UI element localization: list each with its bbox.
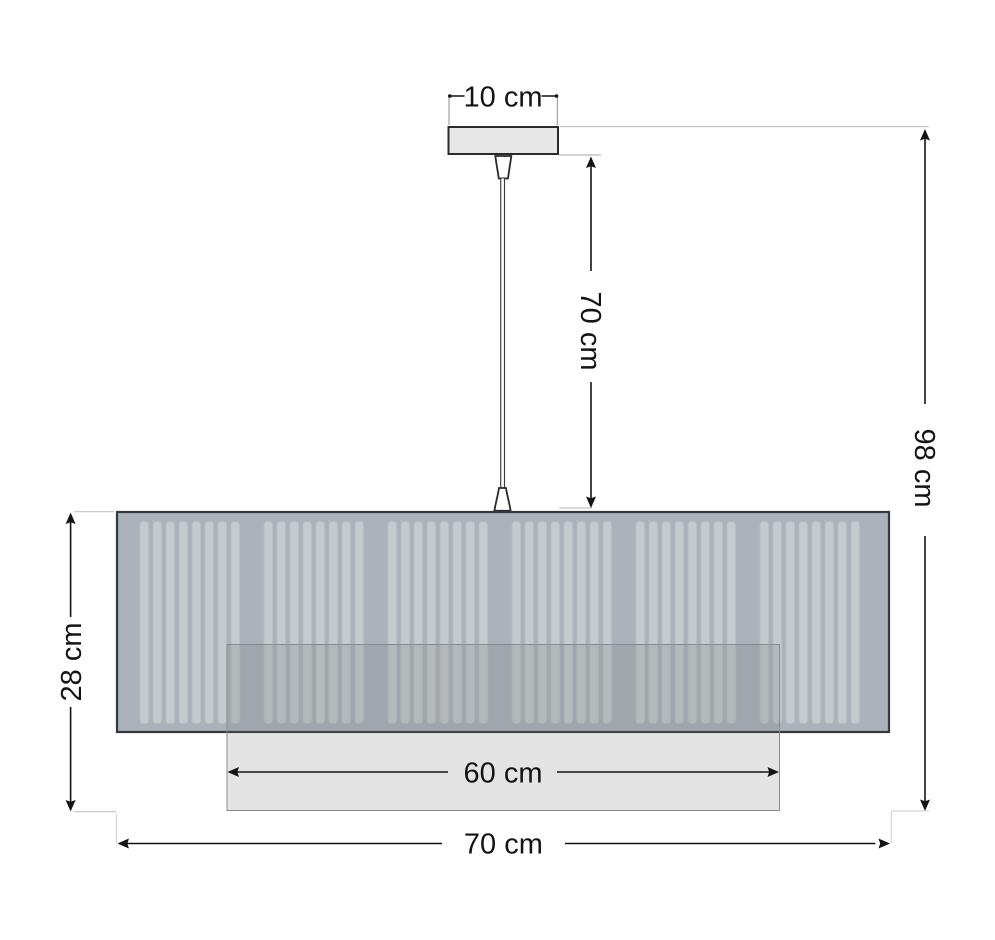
svg-text:28 cm: 28 cm (56, 623, 88, 702)
svg-text:70 cm: 70 cm (464, 829, 543, 861)
svg-text:70 cm: 70 cm (574, 292, 606, 371)
svg-text:98 cm: 98 cm (908, 429, 940, 508)
svg-text:10 cm: 10 cm (464, 82, 543, 114)
svg-text:60 cm: 60 cm (464, 757, 543, 789)
